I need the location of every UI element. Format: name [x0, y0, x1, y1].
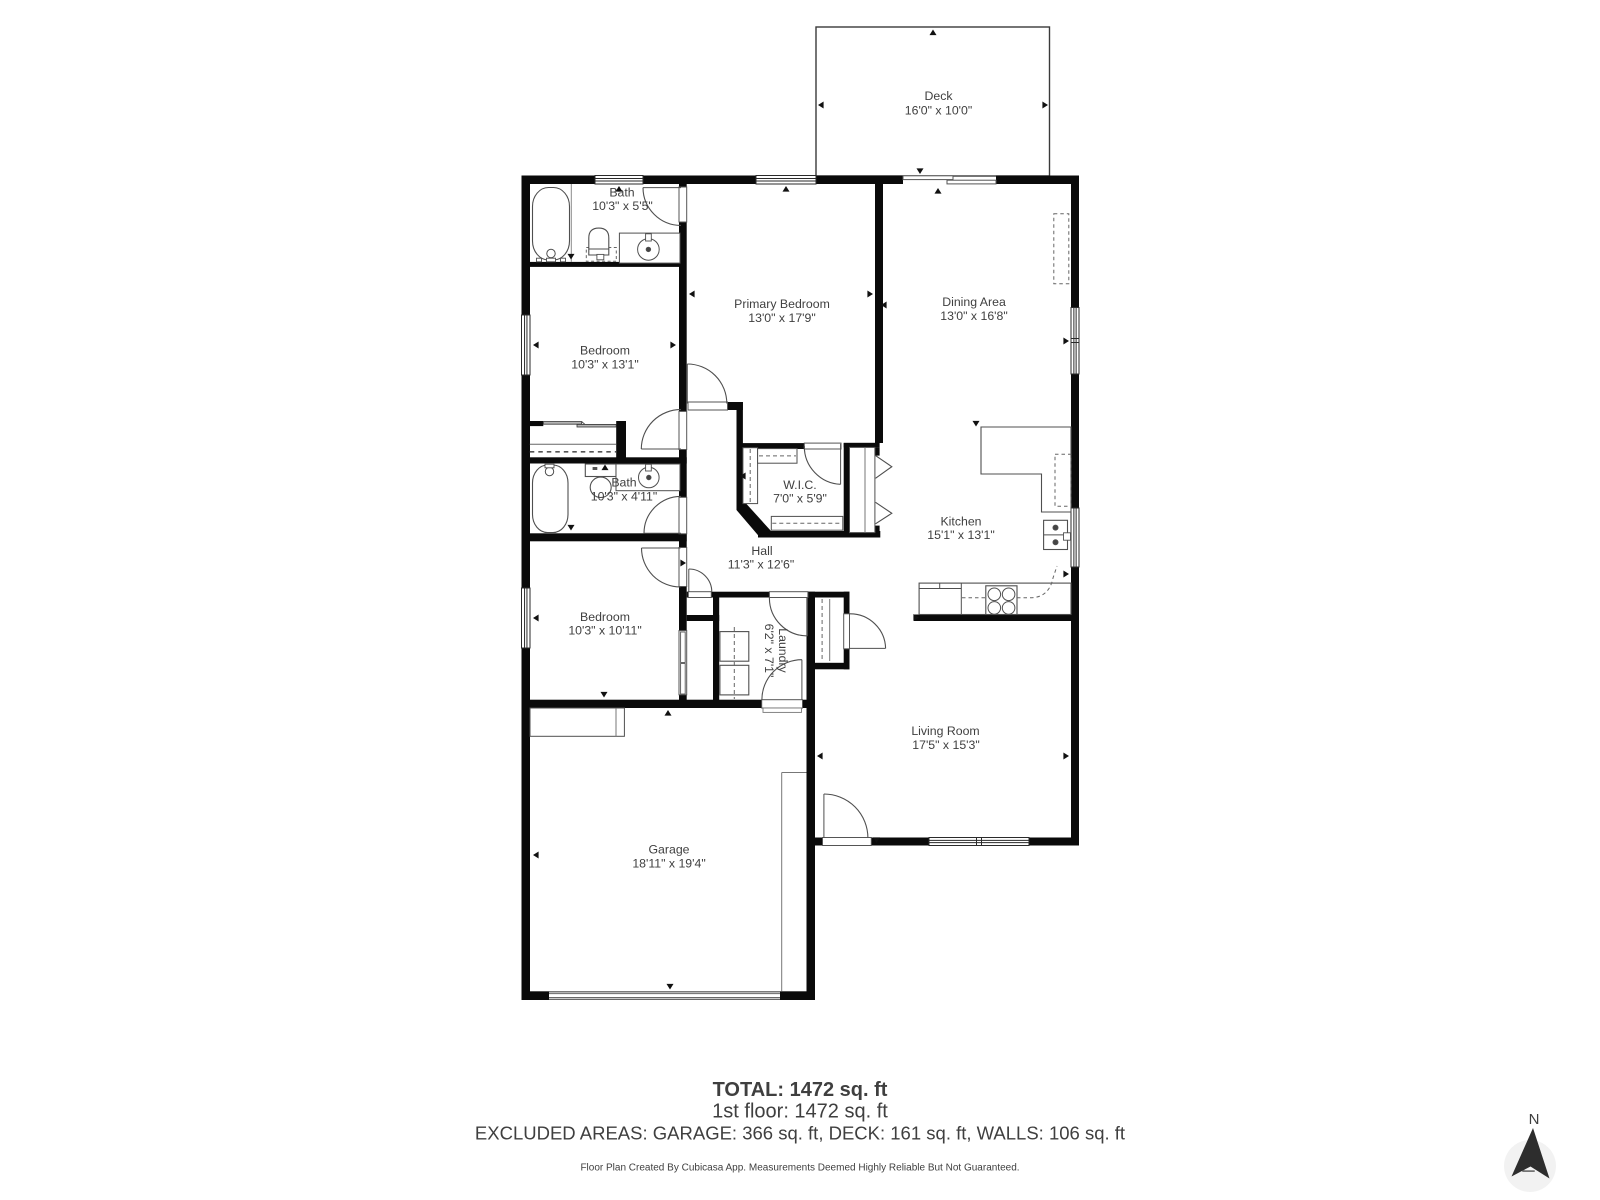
svg-text:Living Room: Living Room — [911, 724, 979, 738]
svg-text:17'5" x 15'3": 17'5" x 15'3" — [912, 738, 979, 752]
svg-text:W.I.C.: W.I.C. — [783, 478, 816, 492]
svg-text:TOTAL: 1472 sq. ft: TOTAL: 1472 sq. ft — [713, 1079, 888, 1101]
svg-text:10'3" x 5'5": 10'3" x 5'5" — [592, 199, 653, 213]
svg-text:EXCLUDED AREAS: GARAGE: 366 sq: EXCLUDED AREAS: GARAGE: 366 sq. ft, DECK… — [475, 1123, 1125, 1144]
svg-text:Kitchen: Kitchen — [940, 515, 981, 529]
svg-text:13'0" x 17'9": 13'0" x 17'9" — [748, 311, 815, 325]
svg-text:10'3" x 13'1": 10'3" x 13'1" — [571, 358, 638, 372]
svg-text:Primary Bedroom: Primary Bedroom — [734, 297, 830, 311]
svg-text:Laundry: Laundry — [776, 628, 790, 673]
svg-text:Dining Area: Dining Area — [942, 295, 1006, 309]
svg-text:N: N — [1529, 1111, 1540, 1128]
svg-text:16'0" x 10'0": 16'0" x 10'0" — [905, 104, 972, 118]
svg-text:1st floor: 1472 sq. ft: 1st floor: 1472 sq. ft — [712, 1101, 888, 1123]
svg-text:Bath: Bath — [609, 186, 634, 200]
svg-text:Bedroom: Bedroom — [580, 610, 630, 624]
svg-text:Garage: Garage — [648, 843, 689, 857]
svg-text:11'3" x 12'6": 11'3" x 12'6" — [728, 558, 795, 572]
svg-text:15'1" x 13'1": 15'1" x 13'1" — [927, 528, 994, 542]
svg-text:10'3" x 4'11": 10'3" x 4'11" — [591, 490, 658, 504]
svg-text:7'0" x 5'9": 7'0" x 5'9" — [773, 492, 827, 506]
svg-text:Deck: Deck — [924, 89, 953, 103]
svg-text:18'11" x 19'4": 18'11" x 19'4" — [632, 857, 705, 871]
svg-text:13'0" x 16'8": 13'0" x 16'8" — [940, 309, 1007, 323]
svg-text:Bath: Bath — [611, 476, 636, 490]
svg-text:Hall: Hall — [751, 544, 772, 558]
svg-text:Floor Plan Created By Cubicasa: Floor Plan Created By Cubicasa App. Meas… — [580, 1163, 1019, 1174]
svg-text:6'2" x 7'1": 6'2" x 7'1" — [762, 624, 776, 678]
svg-text:10'3" x 10'11": 10'3" x 10'11" — [568, 624, 641, 638]
svg-text:Bedroom: Bedroom — [580, 344, 630, 358]
